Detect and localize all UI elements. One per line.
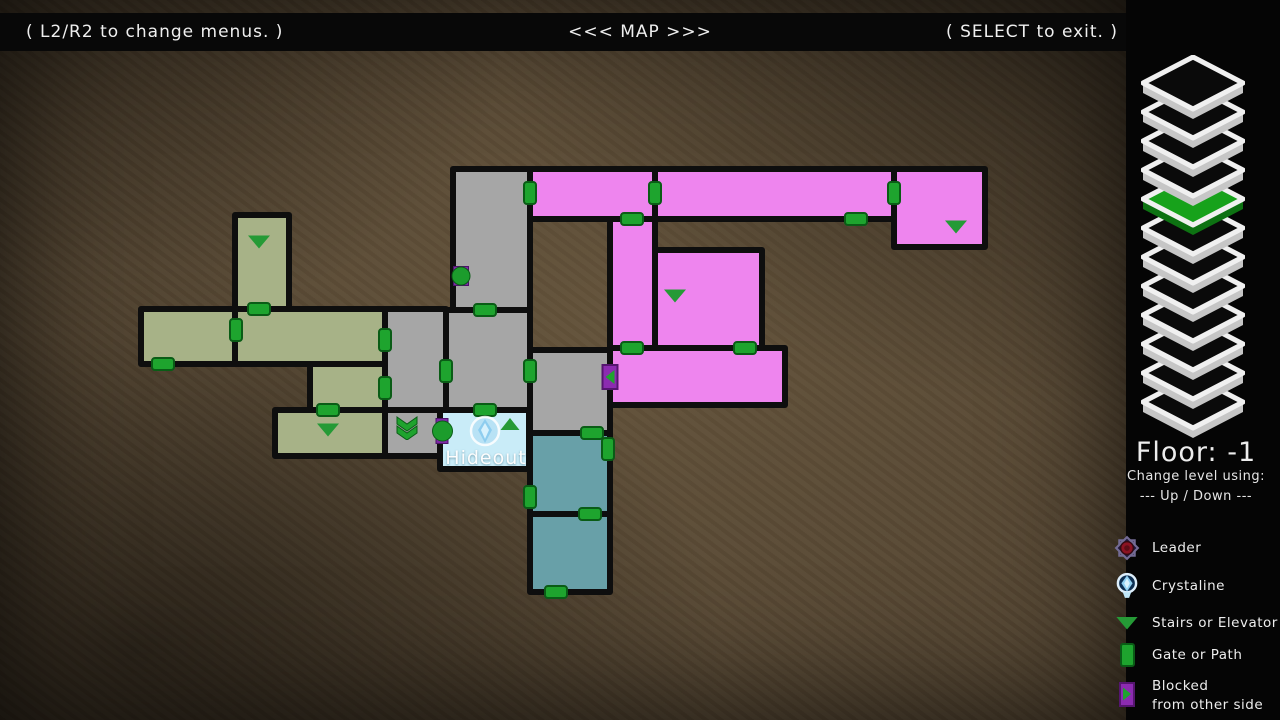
up-down-hint: --- Up / Down ---: [1140, 489, 1252, 504]
gate-marker: [648, 181, 662, 205]
gate-marker: [544, 585, 568, 599]
gate-marker: [473, 303, 497, 317]
floor-stack: [1141, 0, 1245, 450]
gate-marker: [378, 376, 392, 400]
exit-hint: ( SELECT to exit. ): [946, 22, 1118, 42]
legend-row-crystaline: Crystaline: [1112, 571, 1280, 601]
gate-marker: [620, 341, 644, 355]
legend-label: Stairs or Elevator: [1152, 615, 1278, 631]
gate-marker: [523, 359, 537, 383]
blocked-door-marker: [602, 364, 619, 390]
stairs-icon: [1112, 608, 1142, 638]
gate-marker: [580, 426, 604, 440]
double-down-stairs-icon: [394, 414, 420, 444]
legend-row-leader: Leader: [1112, 533, 1280, 563]
change-level-hint: Change level using:: [1127, 469, 1265, 484]
legend-label-line2: from other side: [1152, 697, 1263, 713]
gate-marker: [523, 485, 537, 509]
map-room-magenta-square: [652, 247, 765, 351]
map-room-magenta-ne-room: [891, 166, 988, 250]
blocked-icon: [1112, 674, 1142, 714]
legend-label: Leader: [1152, 540, 1201, 556]
gate-marker: [439, 359, 453, 383]
map-room-teal-lower: [527, 511, 613, 595]
gate-marker: [247, 302, 271, 316]
map-room-olive-tower: [232, 212, 292, 312]
gate-marker: [523, 181, 537, 205]
map-room-gray-east: [527, 347, 613, 436]
map-room-gray-mid: [443, 307, 533, 413]
leader-icon: [1112, 533, 1142, 563]
gate-marker: [620, 212, 644, 226]
map-screen: Hideout ( L2/R2 to change menus. ) <<< M…: [0, 0, 1280, 720]
crystaline-icon: [1112, 571, 1142, 601]
map-title: <<< MAP >>>: [568, 22, 712, 42]
legend-label: Blocked: [1152, 678, 1208, 694]
gate-marker: [844, 212, 868, 226]
gate-marker: [378, 328, 392, 352]
round-gate-marker: [453, 266, 469, 286]
legend-label: Crystaline: [1152, 578, 1225, 594]
map-room-magenta-shaft: [607, 216, 658, 351]
dungeon-map: Hideout: [0, 0, 1126, 720]
legend-row-stairs: Stairs or Elevator: [1112, 608, 1280, 638]
gate-icon: [1112, 640, 1142, 670]
gate-marker: [229, 318, 243, 342]
map-room-gray-tall: [450, 166, 533, 313]
round-gate-marker: [436, 418, 449, 444]
gate-marker: [733, 341, 757, 355]
legend-row-gate: Gate or Path: [1112, 640, 1280, 670]
gate-marker: [887, 181, 901, 205]
gate-marker: [601, 437, 615, 461]
top-menu-bar: ( L2/R2 to change menus. ) <<< MAP >>> (…: [0, 13, 1126, 51]
floor-layer: [1141, 55, 1245, 127]
gate-marker: [578, 507, 602, 521]
gate-marker: [151, 357, 175, 371]
legend-label: Gate or Path: [1152, 647, 1242, 663]
legend-row-blocked: Blocked from other side: [1112, 674, 1280, 714]
hideout-label: Hideout: [445, 447, 526, 469]
menu-switch-hint: ( L2/R2 to change menus. ): [26, 22, 283, 42]
gate-marker: [316, 403, 340, 417]
